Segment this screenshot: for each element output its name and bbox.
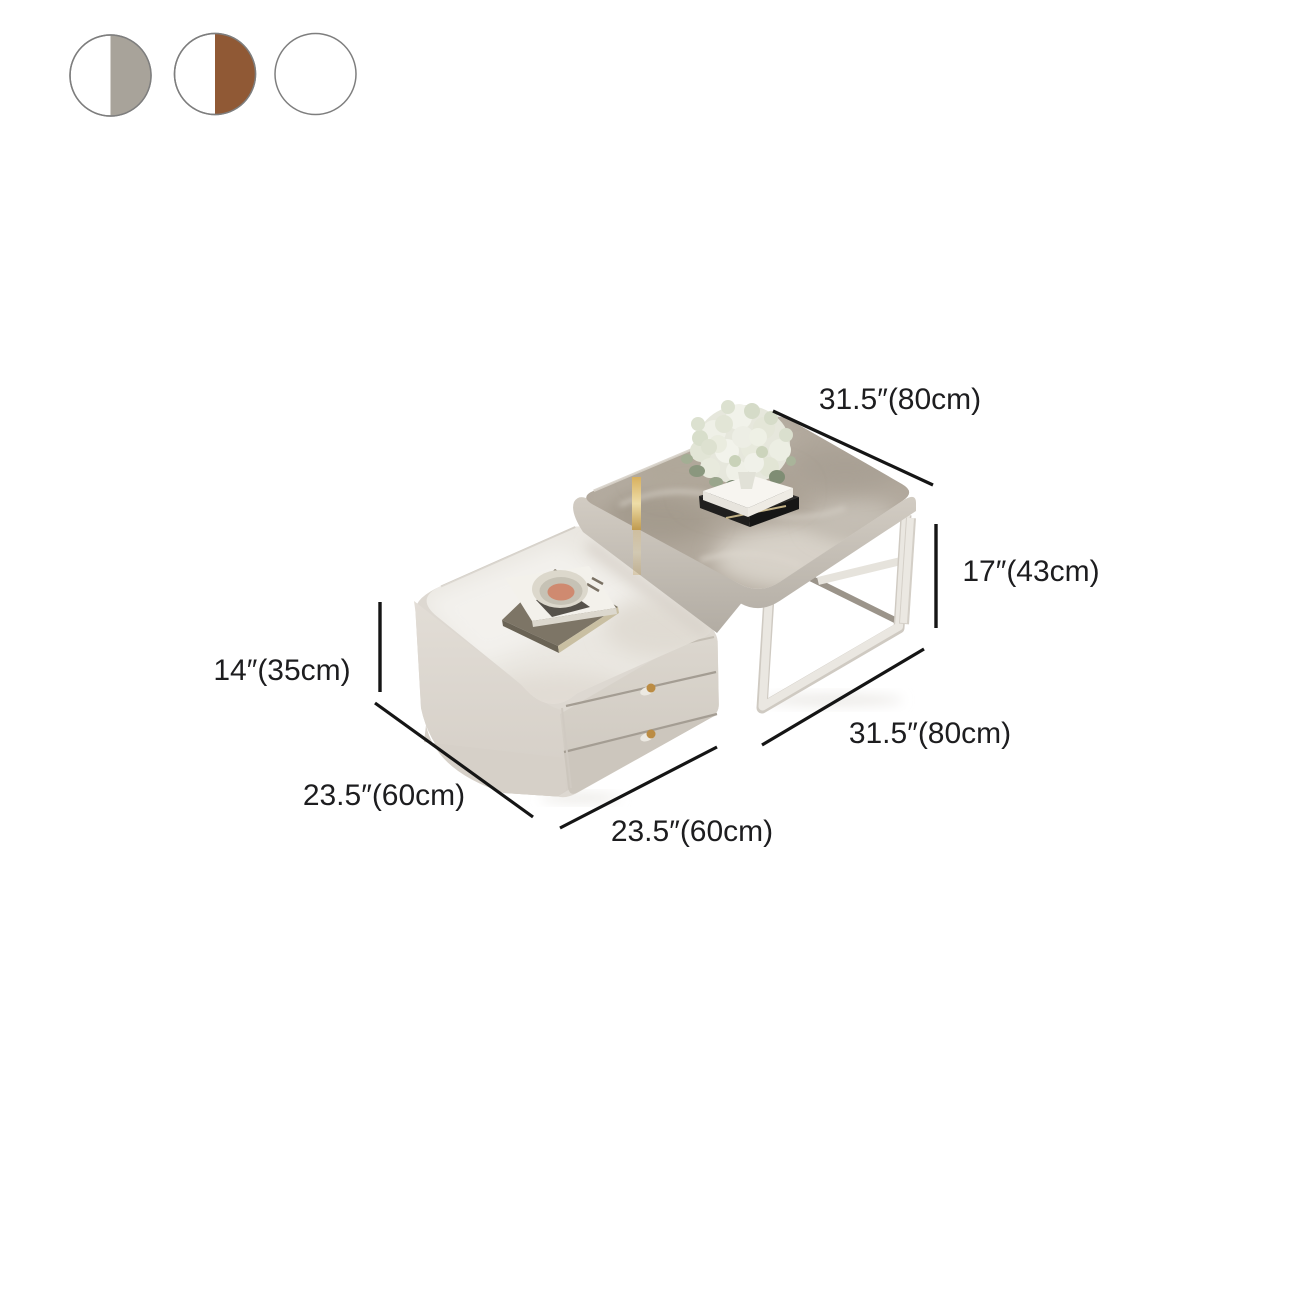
- svg-text:17″(43cm): 17″(43cm): [962, 555, 1099, 588]
- svg-text:14″(35cm): 14″(35cm): [213, 654, 350, 687]
- svg-text:23.5″(60cm): 23.5″(60cm): [611, 815, 773, 848]
- svg-text:31.5″(80cm): 31.5″(80cm): [849, 717, 1011, 750]
- svg-text:31.5″(80cm): 31.5″(80cm): [819, 383, 981, 416]
- svg-text:23.5″(60cm): 23.5″(60cm): [303, 779, 465, 812]
